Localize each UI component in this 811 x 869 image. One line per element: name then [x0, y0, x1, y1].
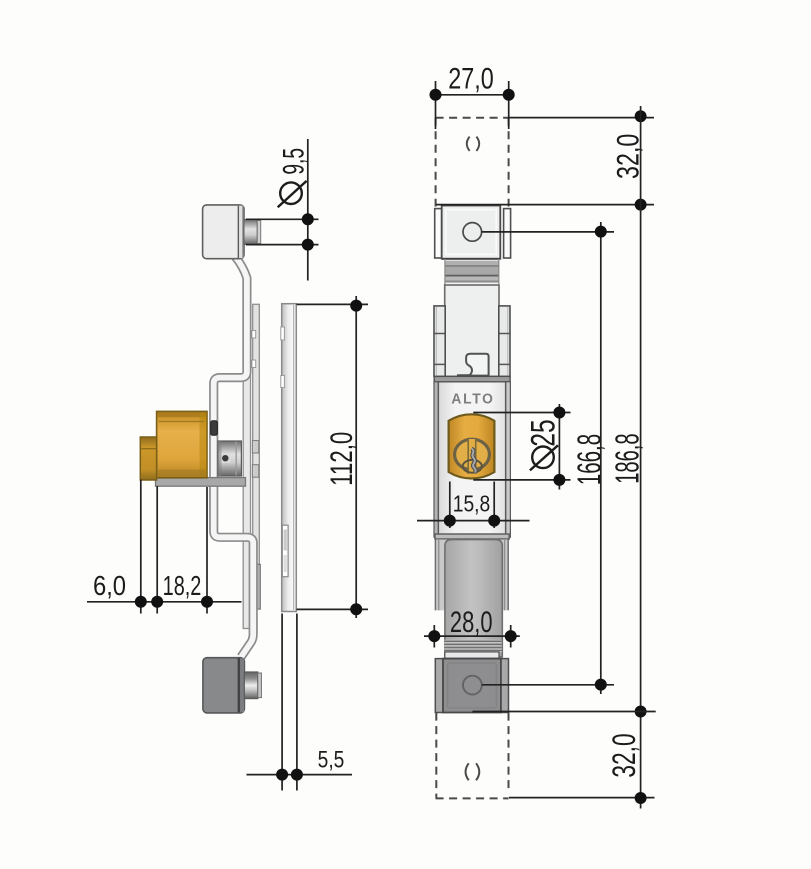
svg-text:27,0: 27,0 — [448, 62, 494, 95]
svg-text:166,8: 166,8 — [571, 434, 608, 485]
svg-text:28,0: 28,0 — [450, 605, 493, 639]
svg-text:15,8: 15,8 — [453, 491, 490, 517]
svg-text:18,2: 18,2 — [163, 571, 202, 602]
svg-text:32,0: 32,0 — [606, 733, 642, 777]
svg-text:112,0: 112,0 — [323, 432, 359, 486]
svg-text:186,8: 186,8 — [608, 433, 645, 483]
svg-text:ALTO: ALTO — [451, 391, 494, 408]
svg-text:25: 25 — [525, 419, 563, 446]
svg-text:5,5: 5,5 — [318, 745, 345, 773]
svg-text:9,5: 9,5 — [277, 148, 310, 175]
svg-text:6,0: 6,0 — [93, 569, 126, 601]
